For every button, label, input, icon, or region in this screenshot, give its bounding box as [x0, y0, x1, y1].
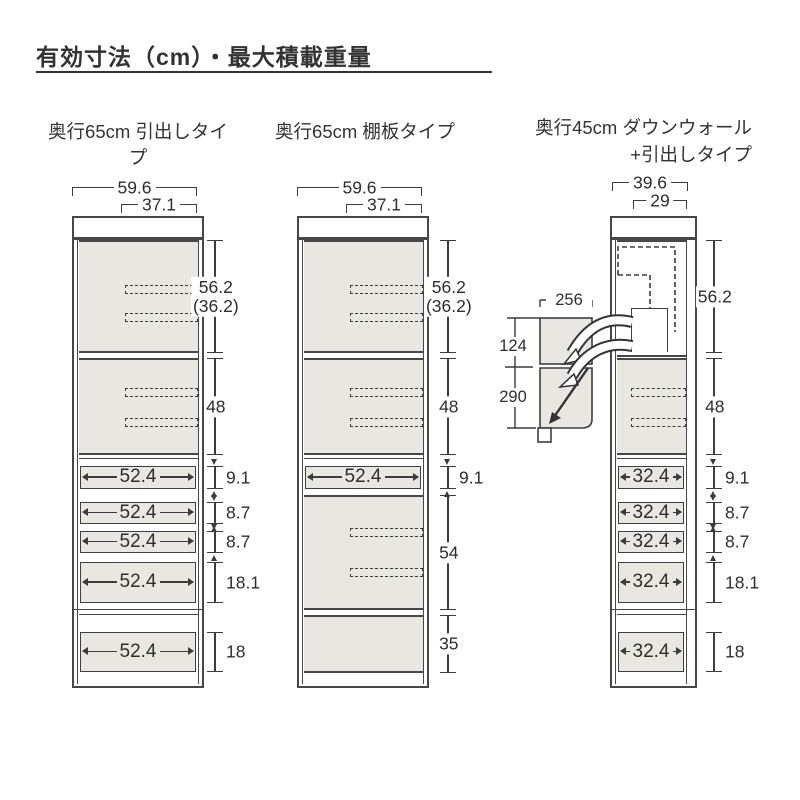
cabinet-drawer-type: 52.4 52.4 52.4 52.4 52.4: [72, 216, 204, 688]
height-dimension: 9.1: [440, 466, 456, 489]
shelf-dashed-outline: [350, 418, 423, 427]
height-dimension-label: 35: [437, 633, 460, 654]
column-header-downwall-line1: 奥行45cm ダウンウォール: [530, 115, 752, 142]
sideview-width-label: 256: [546, 291, 592, 310]
height-dimension-label: 8.7: [723, 502, 751, 523]
title-underline: [36, 71, 492, 73]
drawer-width-label: 52.4: [120, 502, 157, 524]
drawer-width-label: 32.4: [633, 502, 670, 524]
height-dimension-label: 9.1: [224, 467, 252, 488]
height-dimension: 9.1: [706, 466, 722, 489]
height-dimension: 56.2: [706, 240, 722, 353]
drawer-box: 52.4: [305, 466, 421, 489]
height-dimension: 56.2(36.2): [440, 240, 456, 353]
divider-line: [304, 458, 423, 459]
drawer-width-label: 32.4: [633, 466, 670, 488]
drawer-box: 52.4: [80, 531, 196, 553]
drawer-width-label: 32.4: [633, 531, 670, 553]
divider-line: [79, 614, 198, 615]
shelf-dashed-outline: [350, 313, 423, 322]
height-dimension: 48: [207, 358, 223, 455]
height-dimension-label: 9.1: [723, 467, 751, 488]
height-dimension: 8.7: [207, 531, 223, 553]
column-header-shelf-type: 奥行65cm 棚板タイプ: [270, 118, 460, 144]
height-dimension: 56.2(36.2): [207, 240, 223, 353]
spec-diagram-page: 有効寸法（cm）・最大積載重量 奥行65cm 引出しタイプ 奥行65cm 棚板タ…: [0, 0, 800, 800]
divider-line: [617, 458, 686, 459]
drawer-box: 32.4: [618, 502, 684, 524]
sideview-lower-height-label: 290: [492, 388, 534, 407]
height-dimension-label: 56.2: [696, 286, 734, 307]
column-header-downwall-line2: +引出しタイプ: [530, 142, 752, 169]
drawer-width-label: 52.4: [120, 531, 157, 553]
column-header-downwall-type: 奥行45cm ダウンウォール +引出しタイプ: [530, 115, 752, 169]
divider-line: [79, 458, 198, 459]
shelf-dashed-outline: [350, 568, 423, 577]
height-dimension-label: 8.7: [224, 531, 252, 552]
height-dimension: 9.1: [207, 466, 223, 489]
height-dimension-label: 48: [204, 396, 227, 417]
width-dimension-inner: 37.1: [121, 200, 197, 214]
width-dimension-inner: 37.1: [346, 200, 422, 214]
height-dimension: 8.7: [207, 502, 223, 524]
height-dimension: 18: [207, 632, 223, 672]
height-dimension: 48: [706, 358, 722, 455]
height-dimension-label: 18.1: [723, 572, 761, 593]
page-title: 有効寸法（cm）・最大積載重量: [36, 38, 372, 72]
drawer-box: 52.4: [80, 502, 196, 524]
drawer-box: 32.4: [618, 562, 684, 603]
middle-compartment: [79, 358, 198, 455]
upper-compartment: [79, 240, 198, 353]
upper-compartment: [304, 240, 423, 353]
cabinet-crown: [612, 218, 695, 240]
column-header-drawer-type: 奥行65cm 引出しタイプ: [42, 118, 234, 170]
drawer-box: 32.4: [618, 531, 684, 553]
drawer-width-label: 32.4: [633, 641, 670, 663]
height-dimension: 54: [440, 495, 456, 610]
height-dimension: 18.1: [706, 562, 722, 603]
shelf-dashed-outline: [350, 528, 423, 537]
height-dimension: 18.1: [207, 562, 223, 603]
width-dimension-label: 37.1: [363, 194, 405, 215]
drawer-width-label: 52.4: [120, 641, 157, 663]
height-dimension-label: 9.1: [457, 467, 485, 488]
drawer-width-label: 52.4: [345, 466, 382, 488]
height-dimension-label: 8.7: [224, 502, 252, 523]
cabinet-shelf-type: 52.4: [297, 216, 429, 688]
divider-line: [617, 614, 686, 615]
shelf-dashed-outline: [350, 388, 423, 397]
middle-compartment: [304, 358, 423, 455]
sideview-upper-height-label: 124: [492, 337, 534, 356]
height-dimension: 8.7: [706, 531, 722, 553]
drawer-box: 52.4: [80, 562, 196, 603]
height-dimension-label: 48: [703, 396, 726, 417]
shelf-dashed-outline: [125, 313, 198, 322]
shelf-dashed-outline: [125, 418, 198, 427]
height-dimension: 18: [706, 632, 722, 672]
shelf-dashed-outline: [125, 285, 198, 294]
bottom-compartment: [304, 615, 423, 673]
shelf-dashed-outline: [125, 388, 198, 397]
drawer-width-label: 52.4: [120, 466, 157, 488]
drawer-box: 52.4: [80, 632, 196, 672]
height-dimension-label: 56.2(36.2): [424, 276, 474, 317]
height-dimension: 8.7: [706, 502, 722, 524]
height-dimension-label: 18: [224, 641, 247, 662]
height-dimension-label: 56.2(36.2): [191, 276, 241, 317]
drawer-width-label: 52.4: [120, 571, 157, 593]
shelf-dashed-outline: [350, 285, 423, 294]
drawer-width-label: 32.4: [633, 571, 670, 593]
width-dimension-label: 29: [646, 190, 673, 211]
lower-shelf-compartment: [304, 495, 423, 610]
height-dimension-label: 48: [437, 396, 460, 417]
cabinet-crown: [299, 218, 427, 240]
height-dimension-label: 54: [437, 542, 460, 563]
drawer-box: 32.4: [618, 466, 684, 489]
height-dimension: 35: [440, 615, 456, 673]
height-dimension: 48: [440, 358, 456, 455]
height-dimension-label: 18.1: [224, 572, 262, 593]
height-dimension-label: 8.7: [723, 531, 751, 552]
width-dimension-label: 37.1: [138, 194, 180, 215]
divider-line: [612, 609, 695, 610]
width-dimension-inner: 29: [633, 196, 687, 210]
height-dimension-label: 18: [723, 641, 746, 662]
divider-line: [74, 609, 202, 610]
cabinet-crown: [74, 218, 202, 240]
drawer-box: 32.4: [618, 632, 684, 672]
drawer-box: 52.4: [80, 466, 196, 489]
